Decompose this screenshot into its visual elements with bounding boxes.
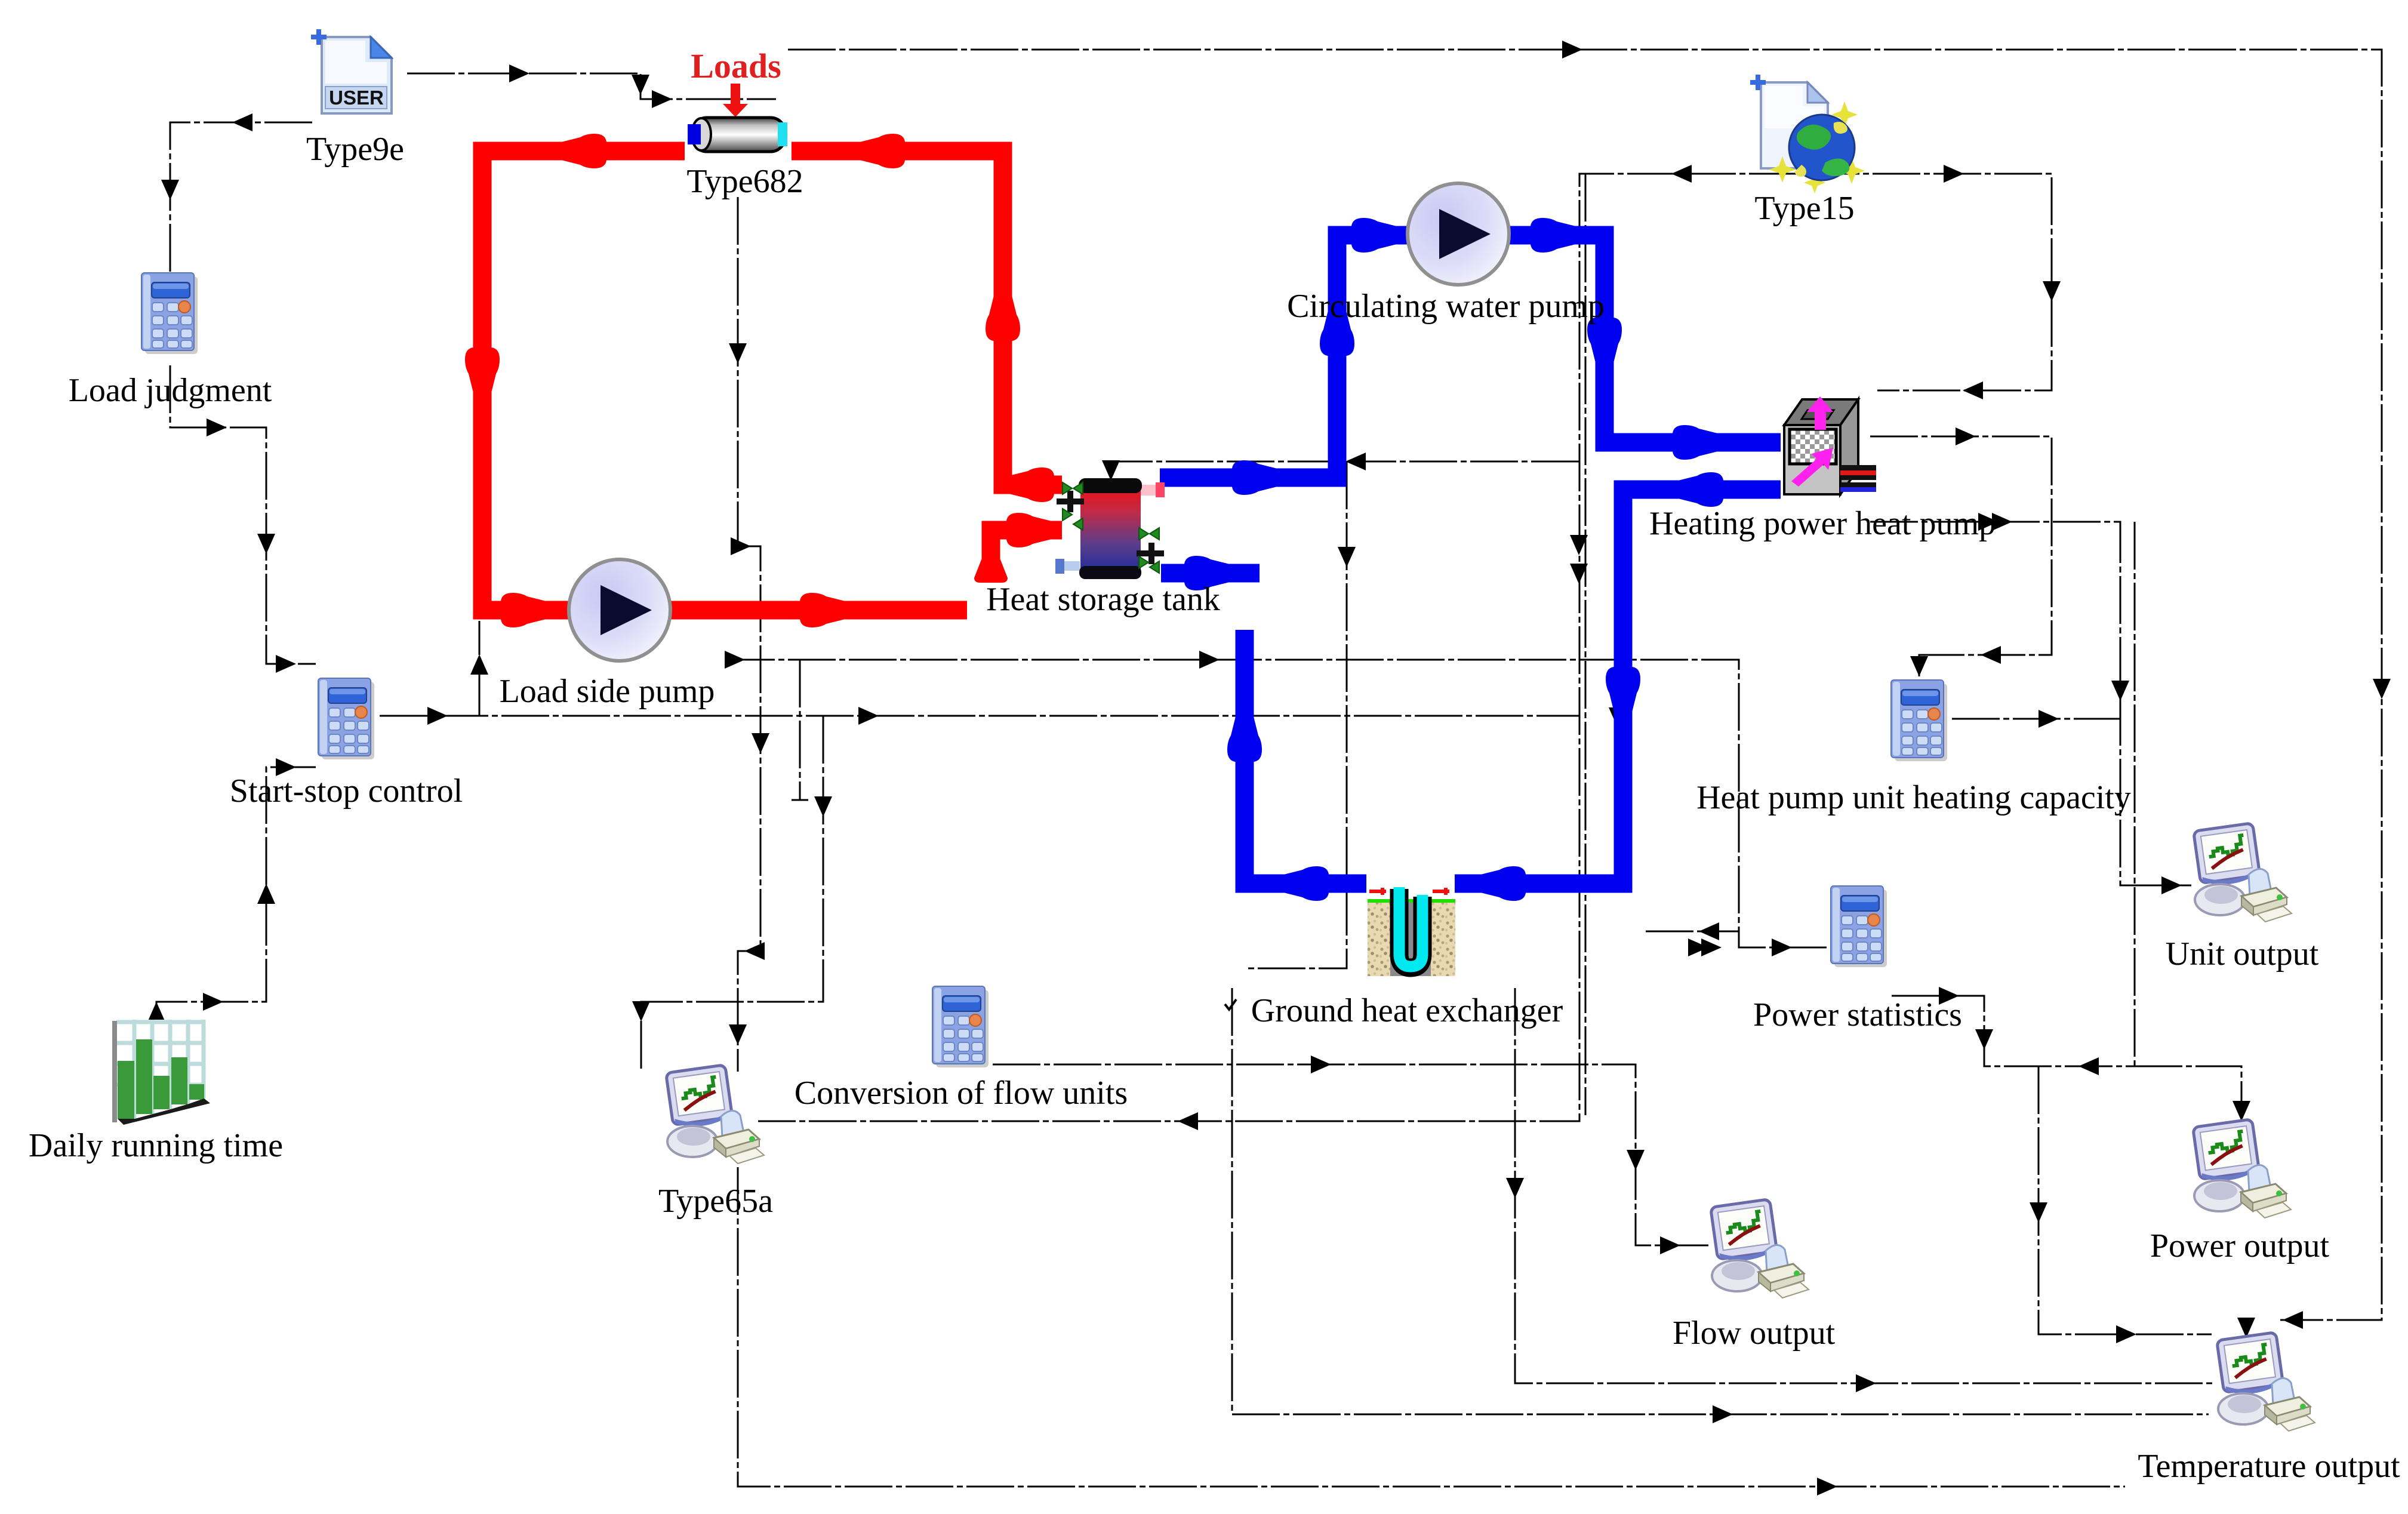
svg-text:Heat pump unit heating capacit: Heat pump unit heating capacity — [1696, 779, 2131, 816]
svg-text:Heating power heat pump: Heating power heat pump — [1649, 505, 1996, 542]
svg-text:Type9e: Type9e — [306, 131, 404, 168]
svg-text:Type682: Type682 — [686, 163, 803, 200]
svg-text:Daily running time: Daily running time — [29, 1127, 283, 1164]
svg-text:Unit output: Unit output — [2166, 936, 2319, 973]
svg-text:Loads: Loads — [691, 47, 781, 85]
svg-text:Temperature output: Temperature output — [2138, 1448, 2400, 1485]
svg-text:Load judgment: Load judgment — [69, 372, 272, 409]
svg-text:Type65a: Type65a — [658, 1183, 773, 1220]
svg-text:Start-stop control: Start-stop control — [230, 773, 463, 810]
svg-text:Power output: Power output — [2150, 1227, 2330, 1264]
svg-text:Load side pump: Load side pump — [500, 673, 715, 710]
svg-text:Power statistics: Power statistics — [1753, 996, 1962, 1033]
svg-text:Ground heat exchanger: Ground heat exchanger — [1251, 992, 1563, 1029]
svg-text:Type15: Type15 — [1754, 190, 1854, 227]
svg-text:USER: USER — [329, 87, 384, 109]
svg-text:Conversion of flow units: Conversion of flow units — [795, 1075, 1128, 1112]
svg-text:Heat storage tank: Heat storage tank — [986, 581, 1220, 618]
svg-text:Flow output: Flow output — [1673, 1315, 1836, 1352]
svg-text:Circulating water pump: Circulating water pump — [1287, 288, 1605, 325]
